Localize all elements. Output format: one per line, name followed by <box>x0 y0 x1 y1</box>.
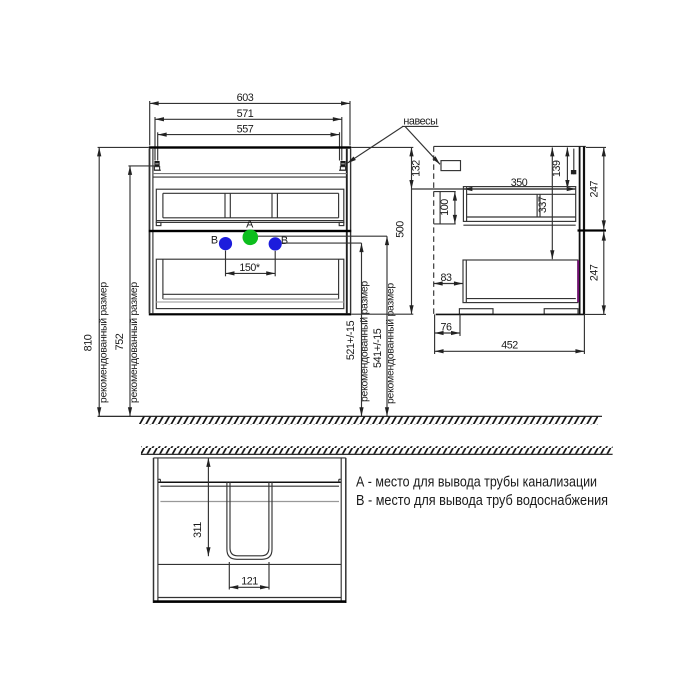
svg-text:навесы: навесы <box>403 115 438 127</box>
svg-text:121: 121 <box>241 576 258 588</box>
svg-text:521+/-15: 521+/-15 <box>345 320 357 360</box>
svg-text:247: 247 <box>589 180 601 197</box>
svg-text:139: 139 <box>551 160 563 177</box>
svg-text:рекомендованный размер: рекомендованный размер <box>128 282 140 403</box>
svg-text:100: 100 <box>439 199 451 216</box>
svg-text:571: 571 <box>237 108 254 120</box>
svg-text:500: 500 <box>394 221 406 238</box>
svg-text:311: 311 <box>192 522 204 538</box>
svg-text:рекомендованный размер: рекомендованный размер <box>359 281 371 402</box>
svg-text:150*: 150* <box>239 262 259 274</box>
svg-text:603: 603 <box>237 92 254 104</box>
svg-text:B: B <box>211 235 218 247</box>
svg-text:76: 76 <box>441 321 452 333</box>
svg-text:рекомендованный размер: рекомендованный размер <box>384 283 396 404</box>
svg-text:452: 452 <box>501 340 518 352</box>
svg-text:247: 247 <box>589 264 601 281</box>
svg-text:А - место для вывода трубы кан: А - место для вывода трубы канализации <box>356 474 597 491</box>
svg-text:350: 350 <box>511 177 528 189</box>
svg-text:541+/-15: 541+/-15 <box>372 328 384 368</box>
svg-text:337: 337 <box>537 196 549 213</box>
svg-text:752: 752 <box>114 333 126 350</box>
svg-text:810: 810 <box>83 334 95 351</box>
svg-text:B: B <box>281 235 288 247</box>
svg-text:В - место для вывода труб водо: В - место для вывода труб водоснабжения <box>356 492 608 509</box>
svg-text:83: 83 <box>441 272 452 284</box>
svg-text:132: 132 <box>411 160 423 177</box>
svg-text:557: 557 <box>237 123 254 135</box>
svg-text:рекомендованный размер: рекомендованный размер <box>98 282 110 403</box>
